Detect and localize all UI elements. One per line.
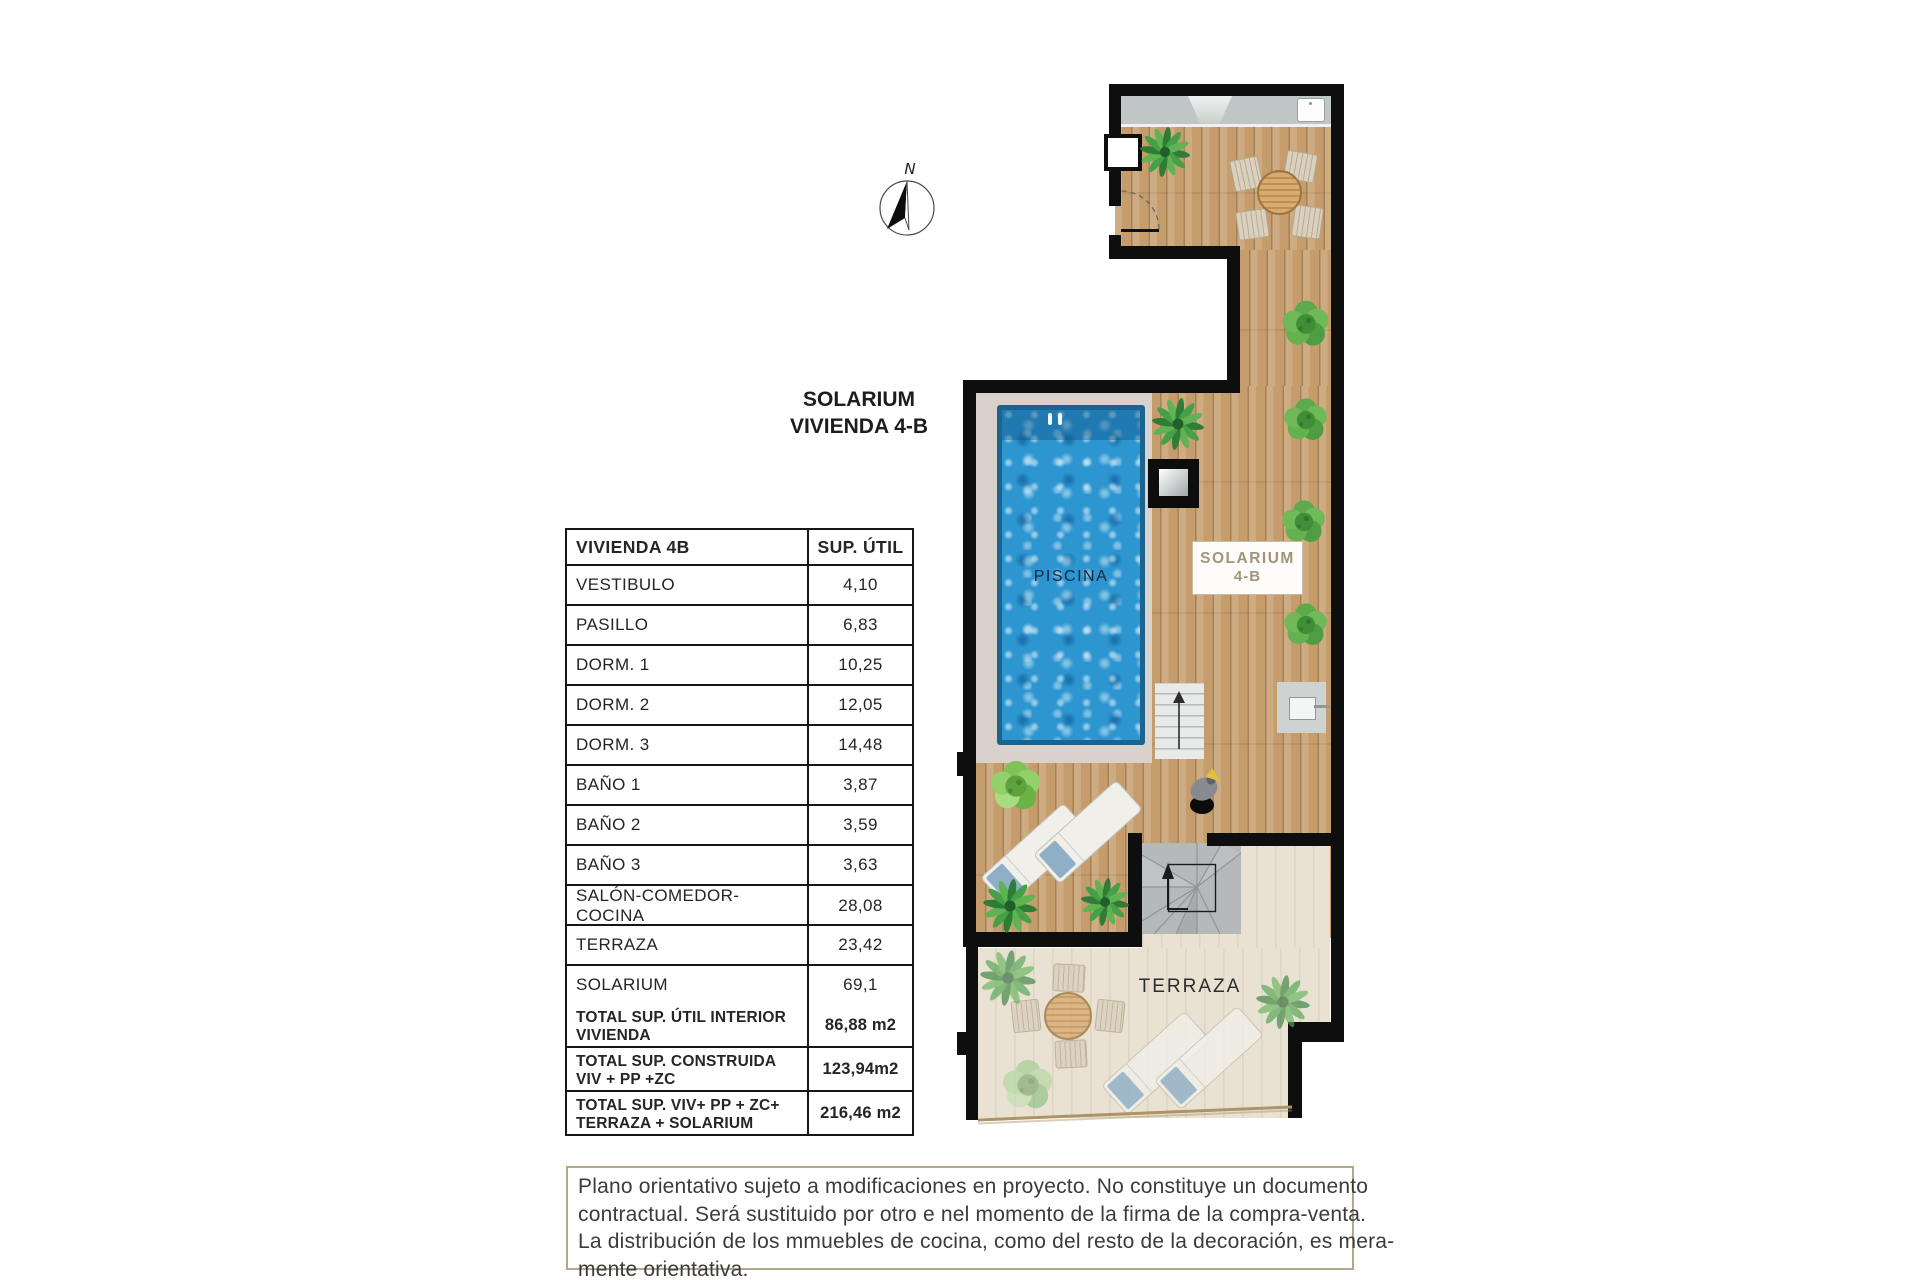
kitchen-counter [1121,96,1331,127]
table-total-row: TOTAL SUP. VIV+ PP + ZC+TERRAZA + SOLARI… [567,1092,912,1134]
row-label: TERRAZA [567,926,807,964]
tree2-plant [987,757,1045,815]
palm-plant [1080,877,1130,927]
exterior-mask [1302,1042,1350,1124]
wall [963,380,976,947]
row-label: BAÑO 2 [567,806,807,844]
table-row: BAÑO 33,63 [567,846,912,886]
table-row: SALÓN-COMEDOR-COCINA28,08 [567,886,912,926]
wall [963,932,1142,947]
outdoor-shower [1277,682,1326,733]
terrace-chair [1052,963,1085,993]
row-label: PASILLO [567,606,807,644]
bush-plant [1281,600,1331,650]
table-row: TERRAZA23,42 [567,926,912,966]
row-value: 3,87 [807,766,912,804]
pool-equipment-box [1148,459,1199,508]
plan-title: SOLARIUM VIVIENDA 4-B [764,386,954,440]
total-label: TOTAL SUP. ÚTIL INTERIORVIVIENDA [567,1004,807,1046]
dining-chair [1235,208,1270,241]
row-label: SOLARIUM [567,966,807,1004]
dining-table [1257,170,1302,215]
row-label: BAÑO 3 [567,846,807,884]
area-table: VIVIENDA 4B SUP. ÚTIL VESTIBULO4,10PASIL… [565,528,914,1136]
row-value: 3,59 [807,806,912,844]
disclaimer-line: Plano orientativo sujeto a modificacione… [578,1173,1342,1201]
compass-n-label: N [904,160,915,178]
plan-title-line2: VIVIENDA 4-B [764,413,954,440]
row-value: 4,10 [807,566,912,604]
row-label: DORM. 2 [567,686,807,724]
disclaimer-box: Plano orientativo sujeto a modificacione… [566,1166,1354,1270]
table-row: SOLARIUM69,1 [567,966,912,1004]
person-figure [1182,763,1226,817]
sink-icon [1297,98,1325,122]
row-value: 23,42 [807,926,912,964]
row-label: VESTIBULO [567,566,807,604]
winder-staircase [1142,843,1241,934]
row-value: 6,83 [807,606,912,644]
total-value: 216,46 m2 [807,1092,912,1134]
bush-plant [1281,395,1331,445]
palm-plant [1139,126,1191,178]
wall [963,380,1240,393]
piscina-label: PISCINA [997,568,1145,586]
dining-chair [1291,204,1324,240]
pool-ladder-icon [1048,413,1052,425]
palm-plant [1151,397,1205,451]
total-label: TOTAL SUP. VIV+ PP + ZC+TERRAZA + SOLARI… [567,1092,807,1134]
pool-step-band [1002,410,1140,440]
wall [1331,84,1344,1024]
total-label: TOTAL SUP. CONSTRUIDAVIV + PP +ZC [567,1048,807,1090]
row-value: 69,1 [807,966,912,1004]
table-total-row: TOTAL SUP. CONSTRUIDAVIV + PP +ZC123,94m… [567,1048,912,1092]
table-row: DORM. 110,25 [567,646,912,686]
disclaimer-line: La distribución de los mmuebles de cocin… [578,1228,1342,1256]
solarium-label-line2: 4-B [1193,568,1302,585]
wall [957,752,969,776]
table-total-row: TOTAL SUP. ÚTIL INTERIORVIVIENDA86,88 m2 [567,1004,912,1048]
terraza-label: TERRAZA [1110,976,1270,998]
wall-niche [1104,134,1142,171]
row-value: 14,48 [807,726,912,764]
door-swing-arc [1114,186,1166,236]
row-value: 28,08 [807,886,912,926]
area-table-header: VIVIENDA 4B SUP. ÚTIL [567,530,912,566]
wall [1207,833,1344,846]
palm-plant [1255,974,1311,1030]
row-value: 3,63 [807,846,912,884]
row-label: DORM. 3 [567,726,807,764]
area-table-totals: TOTAL SUP. ÚTIL INTERIORVIVIENDA86,88 m2… [567,1004,912,1134]
pool-side-stairs [1155,683,1204,759]
tree-plant [999,1056,1057,1114]
pool-ladder-icon [1058,413,1062,425]
row-value: 12,05 [807,686,912,724]
bush-plant [1279,497,1329,547]
terrace-chair [1054,1039,1087,1069]
wall [1109,246,1239,259]
table-row: PASILLO6,83 [567,606,912,646]
terrace-table [1044,992,1092,1040]
terrace-chair [1094,999,1125,1034]
row-label: SALÓN-COMEDOR-COCINA [567,886,807,926]
total-value: 123,94m2 [807,1048,912,1090]
palm-plant [982,878,1038,934]
total-value: 86,88 m2 [807,1004,912,1046]
disclaimer-line: contractual. Será sustituido por otro e … [578,1201,1342,1229]
compass-icon: N [874,158,940,242]
header-col1: VIVIENDA 4B [567,530,807,564]
floor-plan-sheet: N SOLARIUM VIVIENDA 4-B VIVIENDA 4B SUP.… [0,0,1920,1280]
row-value: 10,25 [807,646,912,684]
solarium-label: SOLARIUM 4-B [1192,541,1303,595]
palm-plant [979,949,1037,1007]
area-table-rows: VESTIBULO4,10PASILLO6,83DORM. 110,25DORM… [567,566,912,1004]
shower-pan-icon [1289,697,1316,720]
row-label: DORM. 1 [567,646,807,684]
wall [1109,84,1343,96]
wall [1128,833,1142,947]
table-row: DORM. 314,48 [567,726,912,766]
plan-title-line1: SOLARIUM [764,386,954,413]
table-row: VESTIBULO4,10 [567,566,912,606]
disclaimer-line: mente orientativa. [578,1256,1342,1280]
shower-arm-icon [1314,705,1330,708]
extractor-hood-icon [1188,96,1232,124]
table-row: DORM. 212,05 [567,686,912,726]
wall [957,1032,970,1055]
row-label: BAÑO 1 [567,766,807,804]
header-col2: SUP. ÚTIL [807,530,912,564]
table-row: BAÑO 13,87 [567,766,912,806]
solarium-label-line1: SOLARIUM [1193,550,1302,568]
table-row: BAÑO 23,59 [567,806,912,846]
bush-plant [1279,297,1333,351]
wall [1227,246,1240,392]
